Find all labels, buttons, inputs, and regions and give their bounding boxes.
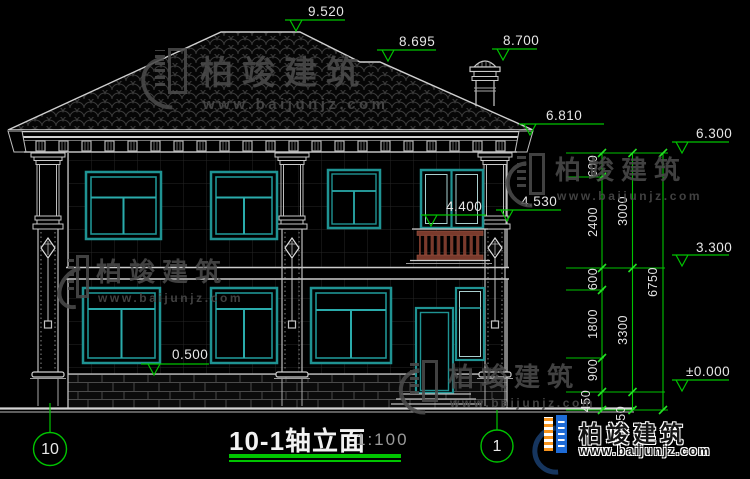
dim-inner-2400: 2400 xyxy=(586,207,600,237)
dim-inner-1800: 1800 xyxy=(586,309,600,339)
watermark-mid-right: 柏竣建筑 www.baijunjz.com xyxy=(505,150,702,203)
watermark-url: www.baijunjz.com xyxy=(450,396,595,410)
level-eave-label: 6.810 xyxy=(546,108,582,123)
dim-total-6750: 6750 xyxy=(646,267,660,297)
level-floor2-label: 3.300 xyxy=(696,240,732,255)
drawing-scale: 1:100 xyxy=(356,430,409,450)
elevation-drawing-canvas: 9.520 8.695 8.700 6.810 6.300 4.400 4.53… xyxy=(0,0,750,479)
watermark-bottom: 柏竣建筑 www.baijunjz.com xyxy=(398,357,595,410)
window-2f-mid xyxy=(211,172,277,239)
level-ground-label: ±0.000 xyxy=(686,364,730,379)
dim-mid-3300: 3300 xyxy=(616,315,630,345)
watermark-logo-icon xyxy=(60,255,90,305)
chimney xyxy=(470,61,500,106)
watermark-logo-icon xyxy=(505,153,549,201)
watermark-logo-icon xyxy=(398,360,442,408)
level-chimney-label: 8.700 xyxy=(503,33,539,48)
watermark-top: 柏竣建筑 www.baijunjz.com xyxy=(140,46,388,113)
eave-cornice xyxy=(8,130,533,153)
brand-logo: 柏竣建筑 www.baijunjz.com xyxy=(531,413,746,469)
level-sill-label: 0.500 xyxy=(172,347,208,362)
level-balcony-in-label: 4.400 xyxy=(446,199,482,214)
window-2f-small xyxy=(328,170,380,228)
watermark-brand: 柏竣建筑 xyxy=(555,150,702,187)
level-subridge-label: 8.695 xyxy=(399,34,435,49)
window-1f-large xyxy=(311,288,391,363)
watermark-brand: 柏竣建筑 xyxy=(200,46,388,94)
watermark-brand: 柏竣建筑 xyxy=(96,252,243,289)
axis-bubble-10: 10 xyxy=(41,441,59,459)
watermark-brand: 柏竣建筑 xyxy=(448,357,595,394)
watermark-mid-left: 柏竣建筑 www.baijunjz.com xyxy=(60,252,243,305)
window-1f-narrow xyxy=(456,288,484,360)
axis-bubble-1: 1 xyxy=(493,438,502,456)
level-ridge-label: 9.520 xyxy=(308,4,344,19)
dim-inner-600b: 600 xyxy=(586,268,600,290)
watermark-url: www.baijunjz.com xyxy=(98,291,243,305)
window-2f-left xyxy=(86,172,161,239)
title-underline-thick xyxy=(229,454,401,458)
drawing-title: 10-1轴立面 xyxy=(229,421,366,458)
title-underline-thin xyxy=(229,460,401,462)
watermark-logo-icon xyxy=(140,48,192,102)
watermark-url: www.baijunjz.com xyxy=(203,96,388,113)
brand-logo-icon xyxy=(533,415,575,467)
watermark-url: www.baijunjz.com xyxy=(557,189,702,203)
brand-logo-url: www.baijunjz.com xyxy=(579,444,711,458)
level-topwall-label: 6.300 xyxy=(696,126,732,141)
